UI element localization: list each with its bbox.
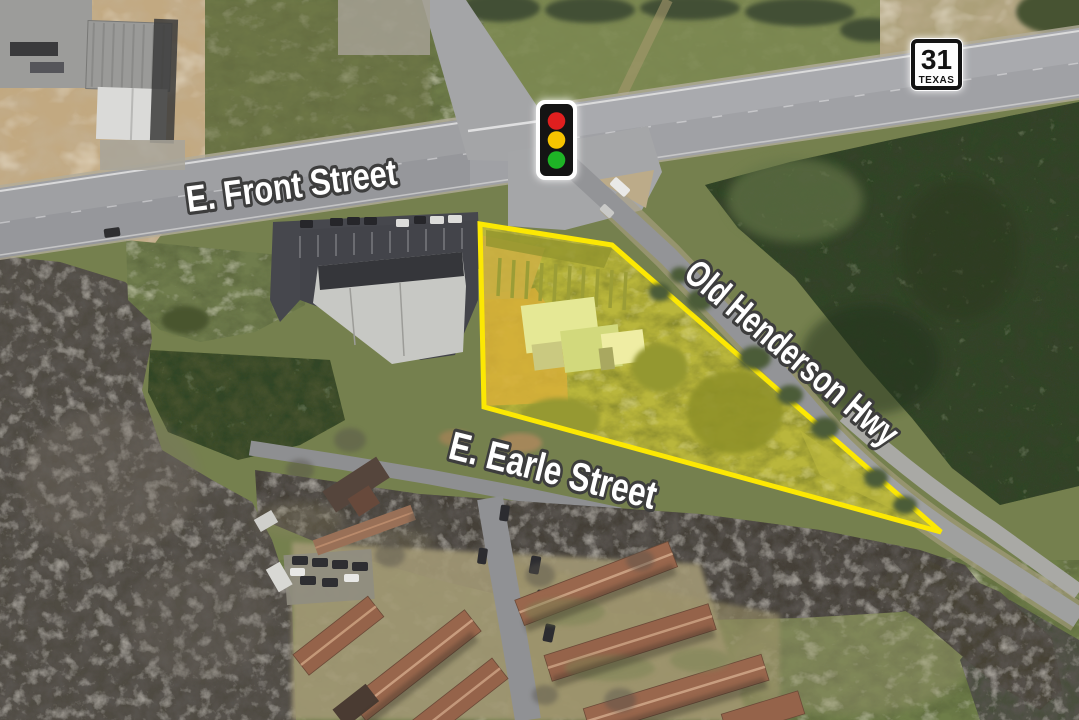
svg-text:TEXAS: TEXAS <box>919 75 955 86</box>
svg-text:31: 31 <box>921 44 952 75</box>
